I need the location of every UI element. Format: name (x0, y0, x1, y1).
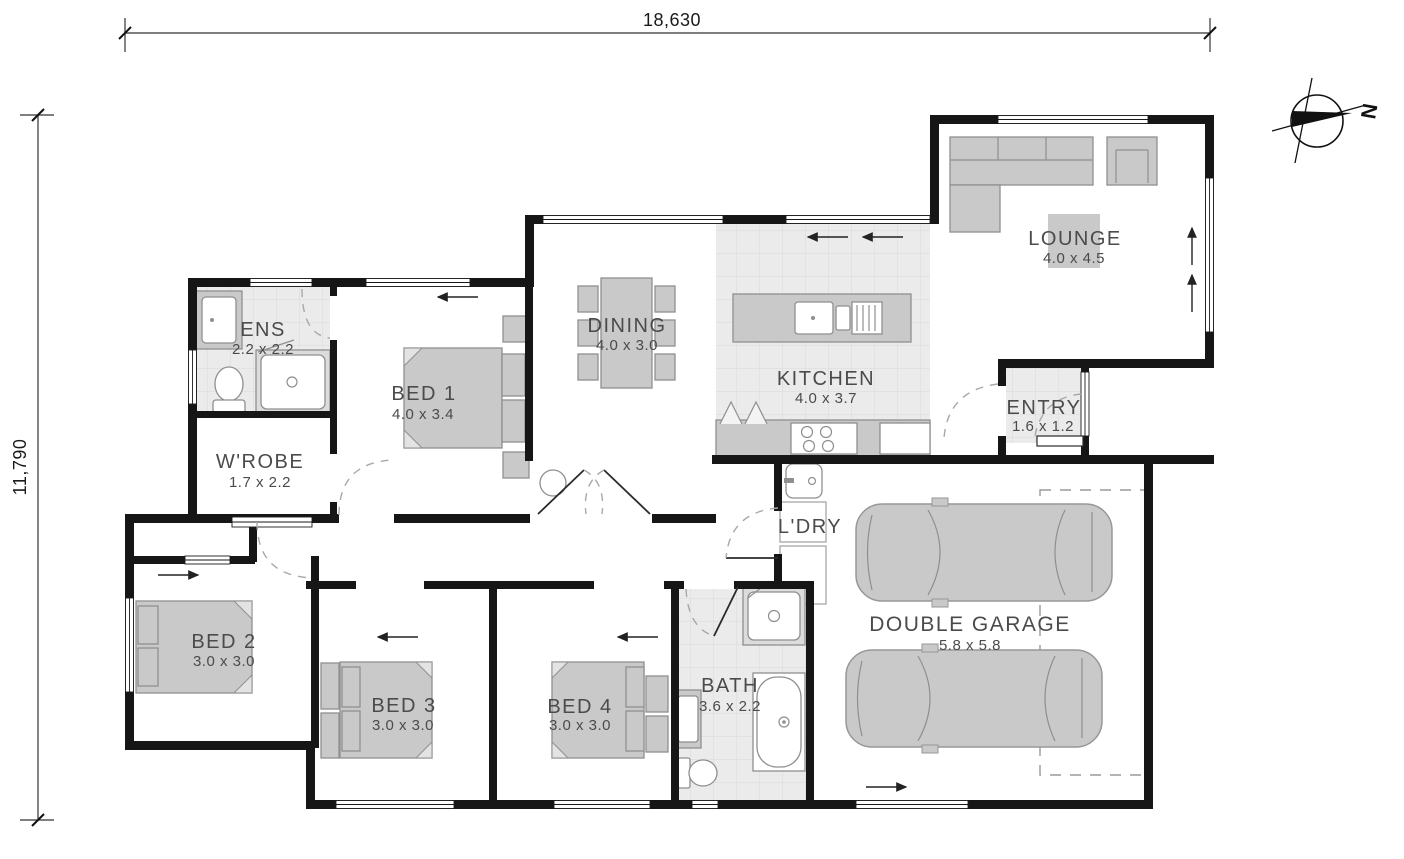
room-label-ldry: L'DRY (778, 516, 842, 538)
door-swing-arc (584, 470, 603, 514)
room-dims-ens: 2.2 x 2.2 (232, 341, 294, 358)
window (126, 598, 134, 692)
car (846, 644, 1102, 753)
dishwasher (880, 423, 930, 454)
chair (578, 286, 598, 312)
door-swing-arc (339, 460, 394, 515)
room-dims-lounge: 4.0 x 4.5 (1043, 250, 1105, 267)
chair (655, 354, 675, 380)
sofa (950, 137, 1093, 185)
room-label-wrobe: W'ROBE (216, 451, 304, 473)
room-label-bed3: BED 3 (371, 695, 436, 717)
window (189, 350, 197, 404)
double-door-leaf (604, 470, 650, 514)
sofa-chaise (950, 185, 1000, 232)
door-swing-arc (944, 384, 998, 438)
window (692, 801, 718, 809)
door-swing-arc (257, 522, 313, 578)
floor-plan-canvas: 18,630 11,790 N (0, 0, 1404, 859)
window (366, 279, 470, 287)
toilet (215, 367, 243, 401)
dining-furniture (540, 278, 675, 496)
dimension-top: 18,630 (119, 10, 1216, 52)
car (856, 498, 1112, 607)
room-dims-bed2: 3.0 x 3.0 (193, 653, 255, 670)
room-label-bed4: BED 4 (547, 696, 612, 718)
door-swing-arc (726, 508, 778, 558)
room-dims-bed4: 3.0 x 3.0 (549, 717, 611, 734)
room-label-ens: ENS (240, 319, 286, 341)
door-swing-arc (585, 470, 604, 514)
room-dims-wrobe: 1.7 x 2.2 (229, 474, 291, 491)
sliding-door (786, 216, 930, 224)
nightstand (646, 676, 668, 712)
floor-plan-svg: 18,630 11,790 N (0, 0, 1404, 859)
window (998, 116, 1148, 124)
dimension-top-label: 18,630 (643, 10, 701, 30)
window (336, 801, 454, 809)
armchair (1107, 137, 1157, 185)
linen-cupboard (232, 517, 312, 527)
north-compass: N (1272, 78, 1381, 163)
room-dims-dining: 4.0 x 3.0 (596, 337, 658, 354)
nightstand (321, 663, 339, 709)
room-label-bed2: BED 2 (191, 631, 256, 653)
room-dims-bed3: 3.0 x 3.0 (372, 717, 434, 734)
room-dims-bed1: 4.0 x 3.4 (392, 406, 454, 423)
chair (655, 286, 675, 312)
dimension-left-label: 11,790 (10, 439, 30, 496)
room-label-garage: DOUBLE GARAGE (869, 613, 1071, 636)
room-label-lounge: LOUNGE (1028, 228, 1121, 250)
sliding-door (185, 556, 230, 564)
room-dims-garage: 5.8 x 5.8 (939, 637, 1001, 654)
room-dims-kitchen: 4.0 x 3.7 (795, 390, 857, 407)
room-label-entry: ENTRY (1007, 397, 1082, 419)
room-dims-entry: 1.6 x 1.2 (1012, 418, 1074, 435)
entry-sidelight-window (1081, 372, 1089, 436)
front-door-leaf (1037, 436, 1083, 446)
room-label-dining: DINING (588, 315, 667, 337)
toilet (678, 758, 690, 788)
room-label-kitchen: KITCHEN (777, 368, 875, 390)
dimension-left: 11,790 (10, 109, 54, 826)
window (554, 801, 650, 809)
sliding-door (856, 801, 968, 809)
compass-north-label: N (1356, 102, 1381, 121)
window (543, 216, 723, 224)
room-dims-bath: 3.6 x 2.2 (699, 698, 761, 715)
nightstand (321, 713, 339, 758)
nightstand (646, 716, 668, 752)
room-label-bed1: BED 1 (391, 383, 456, 405)
chair (578, 354, 598, 380)
window (1206, 178, 1214, 332)
window (250, 279, 312, 287)
room-label-bath: BATH (701, 675, 759, 697)
